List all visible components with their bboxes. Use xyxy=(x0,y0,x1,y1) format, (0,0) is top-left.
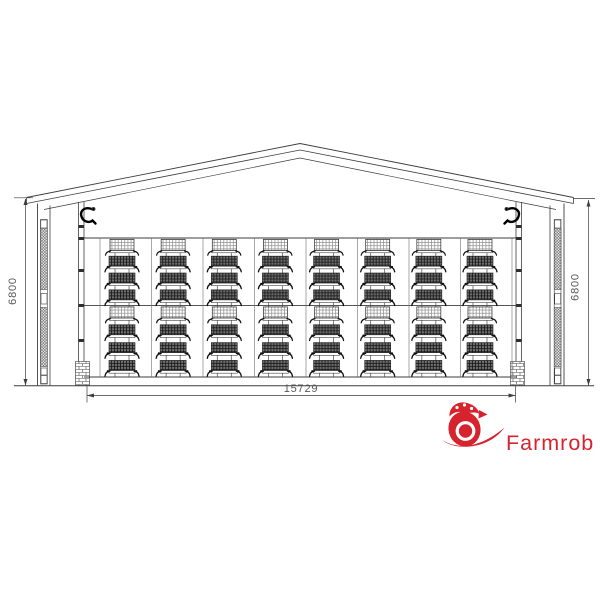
cage-tier xyxy=(310,256,344,272)
cage-tier xyxy=(157,307,190,323)
pulley-hook-icon xyxy=(81,208,95,224)
cage-tier xyxy=(207,343,241,359)
cage-tier xyxy=(208,307,241,323)
cage-tier xyxy=(208,239,241,255)
cage-tier xyxy=(361,343,395,359)
cage-tier xyxy=(463,256,497,272)
cage-tier xyxy=(310,273,344,289)
wall-curtain-hatch xyxy=(554,228,561,290)
left-post xyxy=(76,202,90,386)
cage-tier xyxy=(412,360,446,376)
cage-tier xyxy=(463,343,497,359)
cage-tier xyxy=(259,307,292,323)
drawing-canvas: 6800 6800 15729 Farmrob xyxy=(0,0,600,600)
cage-tier xyxy=(207,290,241,306)
logo-wordmark: Farmrob xyxy=(506,431,594,455)
cage-tier xyxy=(258,360,292,376)
building-structure xyxy=(14,144,594,386)
cage-tier xyxy=(463,273,497,289)
cage-tier xyxy=(412,273,446,289)
cage-tier xyxy=(463,360,497,376)
cage-tier xyxy=(310,360,344,376)
cage-area-frame xyxy=(84,238,517,377)
cage-tier xyxy=(361,360,395,376)
cage-tier xyxy=(157,239,190,255)
cage-tier xyxy=(361,273,395,289)
cage-tier xyxy=(310,290,344,306)
cage-tier xyxy=(463,307,496,323)
cage-tier xyxy=(207,325,241,341)
cage-tier xyxy=(105,325,139,341)
farmrob-logo: Farmrob xyxy=(442,402,595,455)
cage-tier xyxy=(310,307,343,323)
cage-tier xyxy=(156,360,190,376)
cage-tier xyxy=(463,239,496,255)
cage-tier xyxy=(106,239,139,255)
right-post xyxy=(511,202,525,386)
cage-tier xyxy=(412,239,445,255)
cage-tier xyxy=(361,307,394,323)
cage-tier xyxy=(310,325,344,341)
cross-section-drawing: 6800 6800 15729 Farmrob xyxy=(0,0,600,600)
cage-tier xyxy=(258,273,292,289)
logo-shell-dot xyxy=(455,406,458,409)
dim-label-right-height: 6800 xyxy=(570,273,582,301)
cage-tier xyxy=(412,290,446,306)
cage-tier xyxy=(412,256,446,272)
wall-curtain-hatch xyxy=(554,308,561,367)
right-wall-assembly xyxy=(550,204,564,386)
cage-tier xyxy=(310,239,343,255)
cage-tier xyxy=(207,360,241,376)
cage-tier xyxy=(105,290,139,306)
wall-curtain-hatch xyxy=(41,228,48,290)
dim-label-left-height: 6800 xyxy=(7,277,19,305)
cage-tier xyxy=(156,290,190,306)
cage-tier xyxy=(259,239,292,255)
wall-curtain-hatch xyxy=(41,308,48,367)
pulley-hook-icon xyxy=(505,208,519,224)
cage-tier xyxy=(361,325,395,341)
cage-tier xyxy=(310,343,344,359)
cage-tier xyxy=(106,307,139,323)
cage-tier xyxy=(412,343,446,359)
cage-tier xyxy=(105,343,139,359)
cage-tier xyxy=(412,307,445,323)
cage-tier xyxy=(412,325,446,341)
cage-tier xyxy=(361,256,395,272)
logo-beak xyxy=(479,410,488,419)
left-wall-assembly xyxy=(38,204,51,386)
cage-tier xyxy=(258,325,292,341)
cage-tier xyxy=(156,273,190,289)
cage-tier xyxy=(105,256,139,272)
cage-tier xyxy=(258,290,292,306)
cage-tier xyxy=(463,325,497,341)
cage-tier xyxy=(156,256,190,272)
cage-tier xyxy=(361,290,395,306)
cage-tier xyxy=(463,290,497,306)
cage-tier xyxy=(156,343,190,359)
cage-tier xyxy=(207,256,241,272)
cage-tier xyxy=(105,360,139,376)
hatching-egg-icon xyxy=(442,402,505,449)
cage-tier xyxy=(258,343,292,359)
roof xyxy=(27,144,574,210)
cage-tier xyxy=(361,239,394,255)
cage-tier xyxy=(105,273,139,289)
logo-shell-dot xyxy=(470,407,473,410)
dim-label-bottom-width: 15729 xyxy=(284,383,319,395)
cage-tier xyxy=(258,256,292,272)
cage-tier xyxy=(156,325,190,341)
cage-columns xyxy=(105,239,497,377)
logo-shell-dot xyxy=(463,403,466,406)
cage-tier xyxy=(207,273,241,289)
